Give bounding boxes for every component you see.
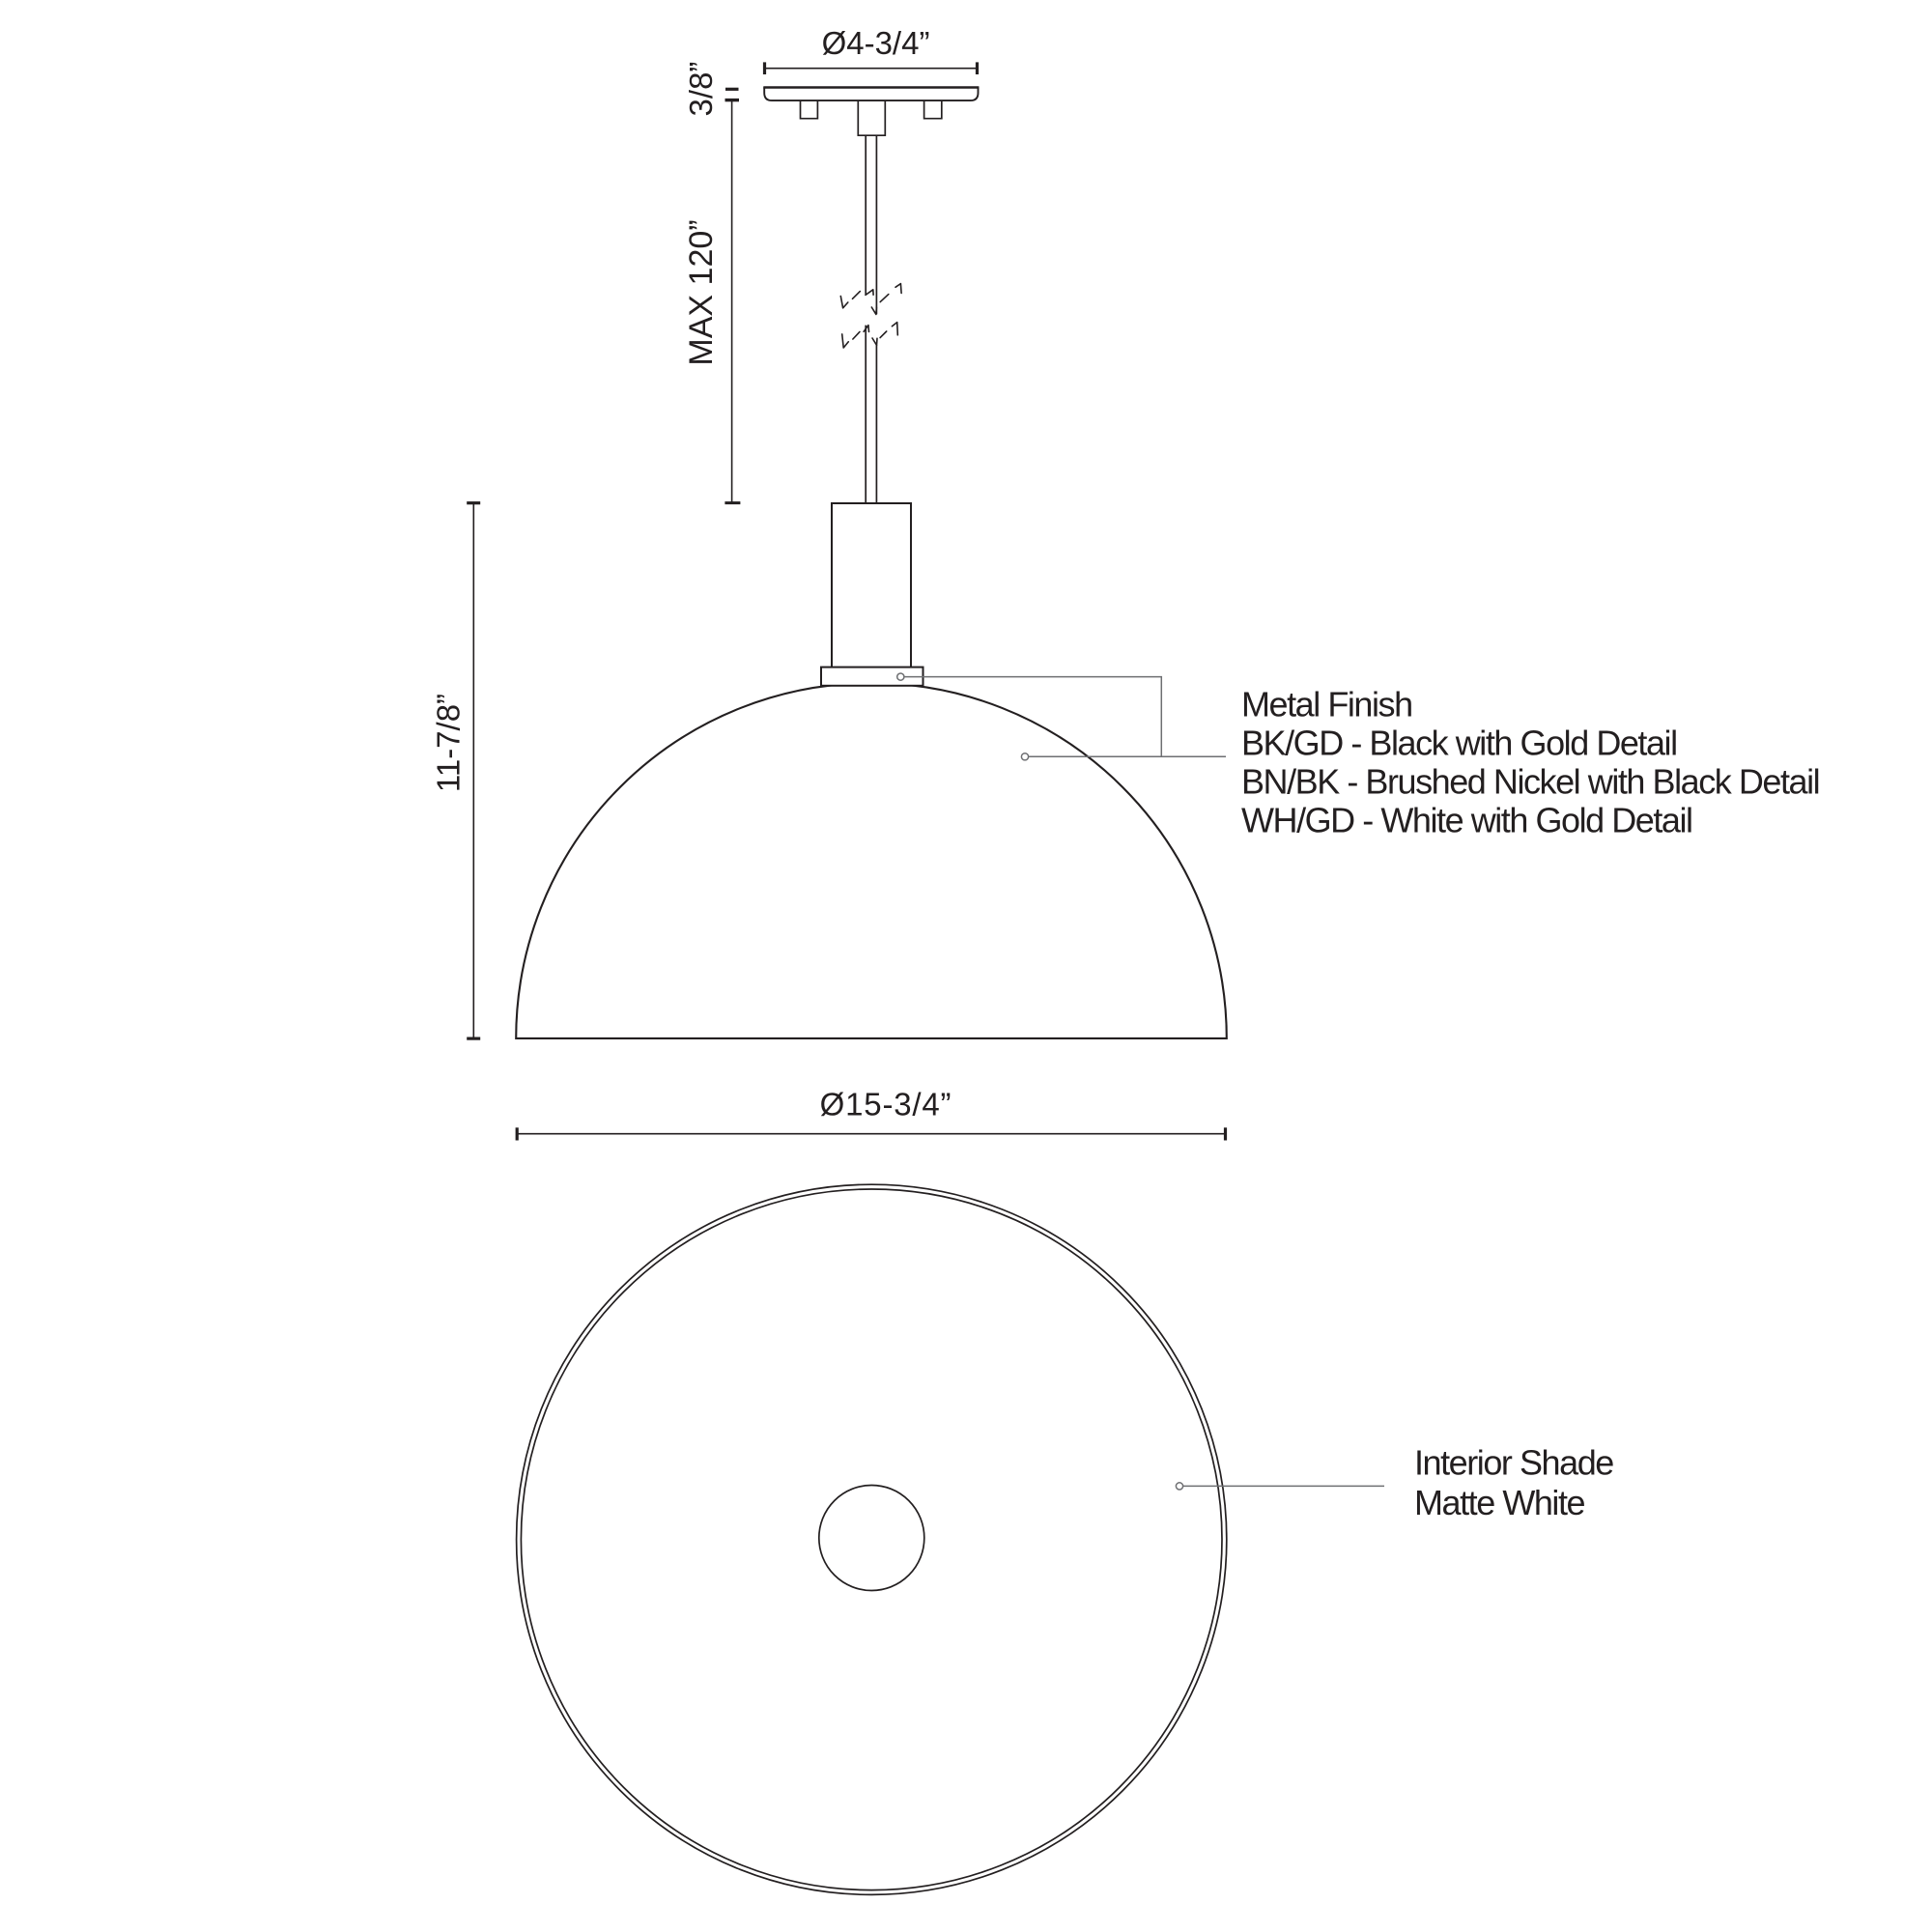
svg-text:3/8”: 3/8” [683,62,719,117]
svg-text:BN/BK - Brushed Nickel with Bl: BN/BK - Brushed Nickel with Black Detail [1241,762,1819,802]
svg-text:Matte White: Matte White [1414,1483,1585,1522]
svg-text:Interior Shade: Interior Shade [1414,1443,1613,1483]
svg-text:Metal Finish: Metal Finish [1241,685,1412,724]
svg-text:Ø15-3/4”: Ø15-3/4” [820,1086,952,1122]
svg-text:BK/GD - Black with Gold Detail: BK/GD - Black with Gold Detail [1241,724,1677,763]
svg-text:Ø4-3/4”: Ø4-3/4” [822,25,930,61]
svg-text:WH/GD - White with Gold Detail: WH/GD - White with Gold Detail [1241,801,1692,840]
svg-text:MAX 120”: MAX 120” [683,219,720,365]
svg-text:11-7/8”: 11-7/8” [431,694,467,792]
